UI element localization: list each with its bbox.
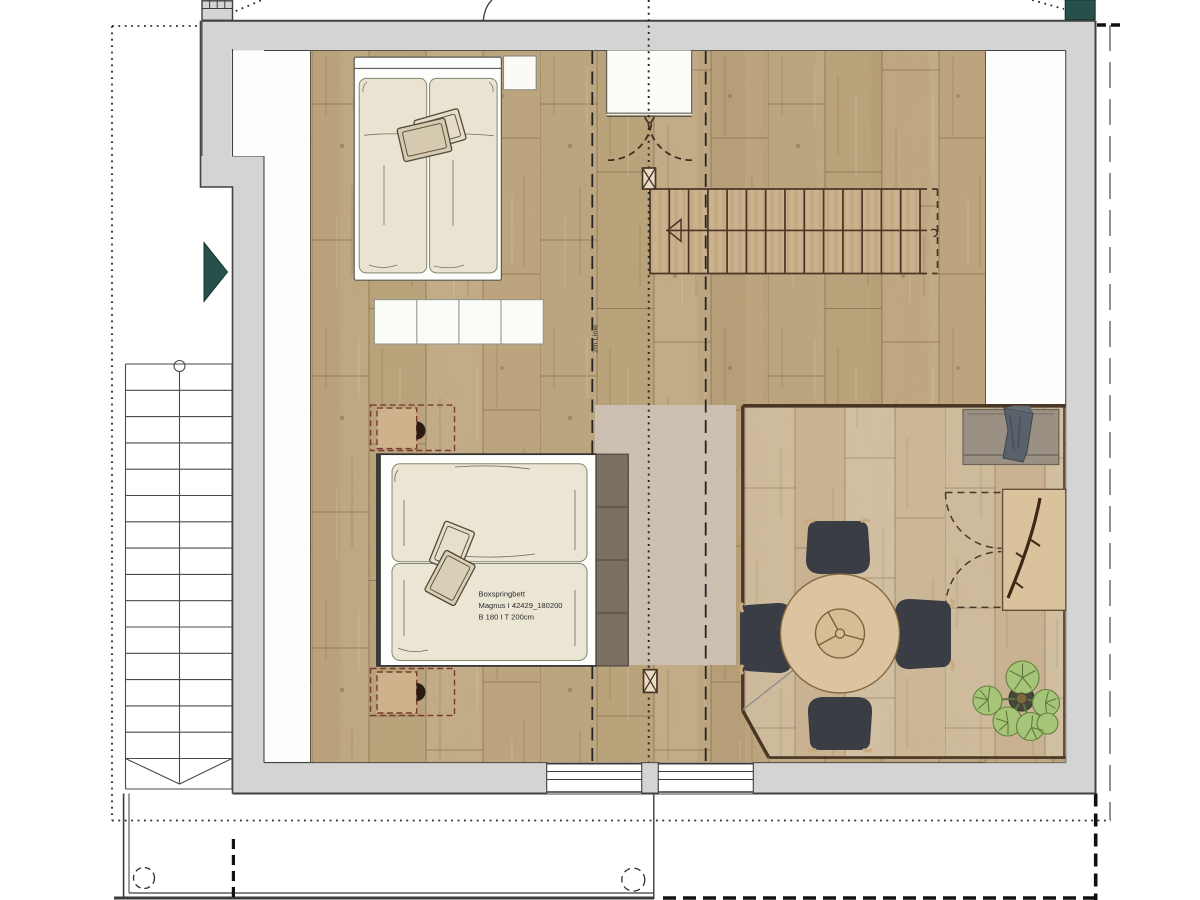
svg-text:2m Linie: 2m Linie <box>591 325 600 353</box>
svg-text:B 180 I T 200cm: B 180 I T 200cm <box>479 613 534 622</box>
svg-text:Boxspringbett: Boxspringbett <box>479 590 526 599</box>
svg-text:Magnus I 42429_180200: Magnus I 42429_180200 <box>479 601 563 610</box>
